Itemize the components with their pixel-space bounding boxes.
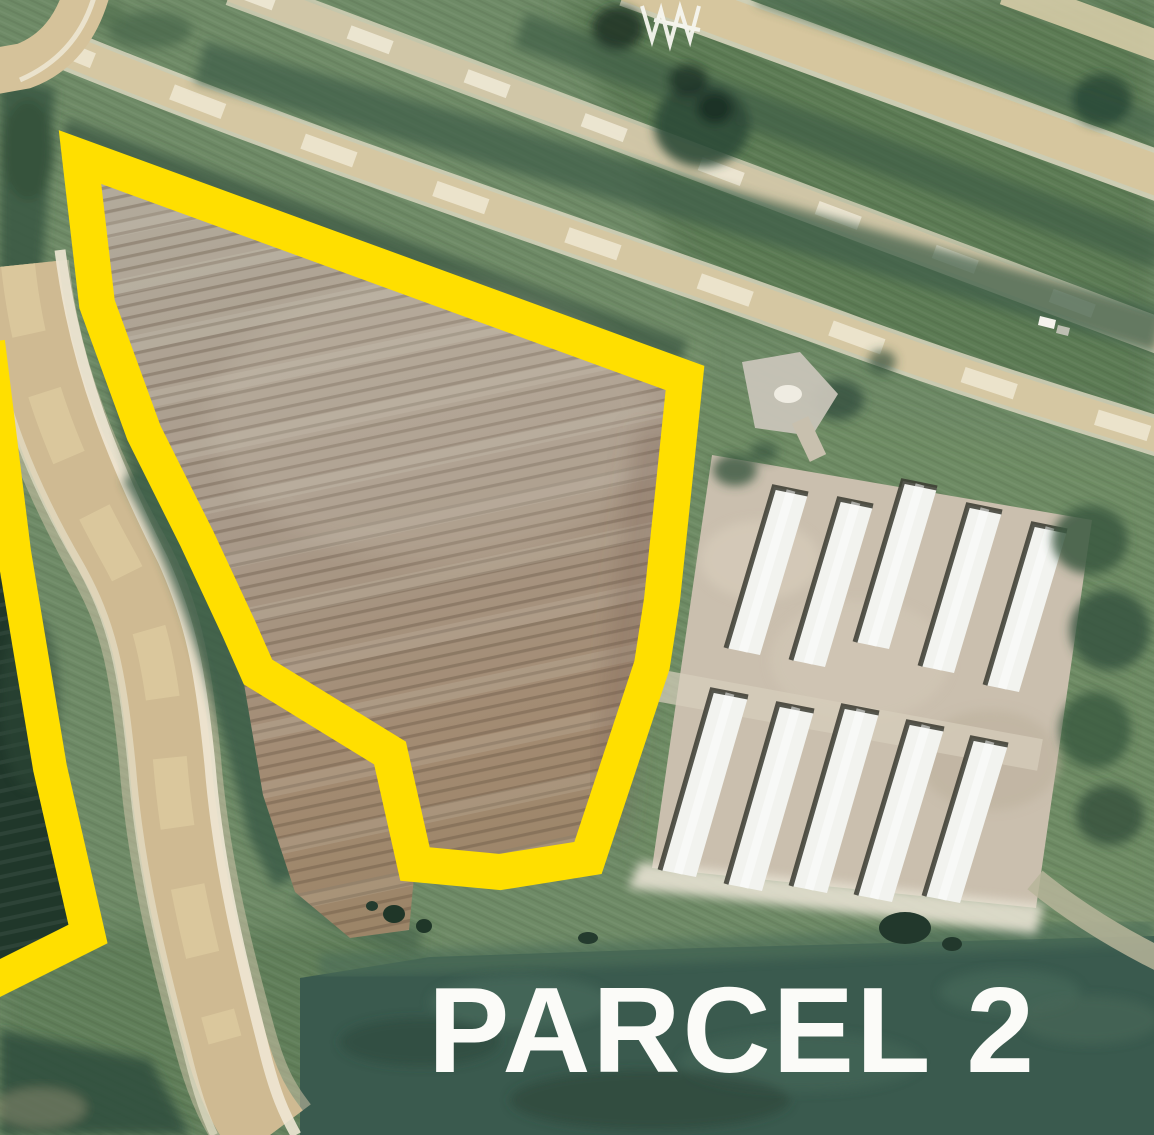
aerial-map: PARCEL 2 (0, 0, 1154, 1135)
parcel-label: PARCEL 2 (428, 962, 1036, 1098)
aerial-map-canvas: PARCEL 2 (0, 0, 1154, 1135)
